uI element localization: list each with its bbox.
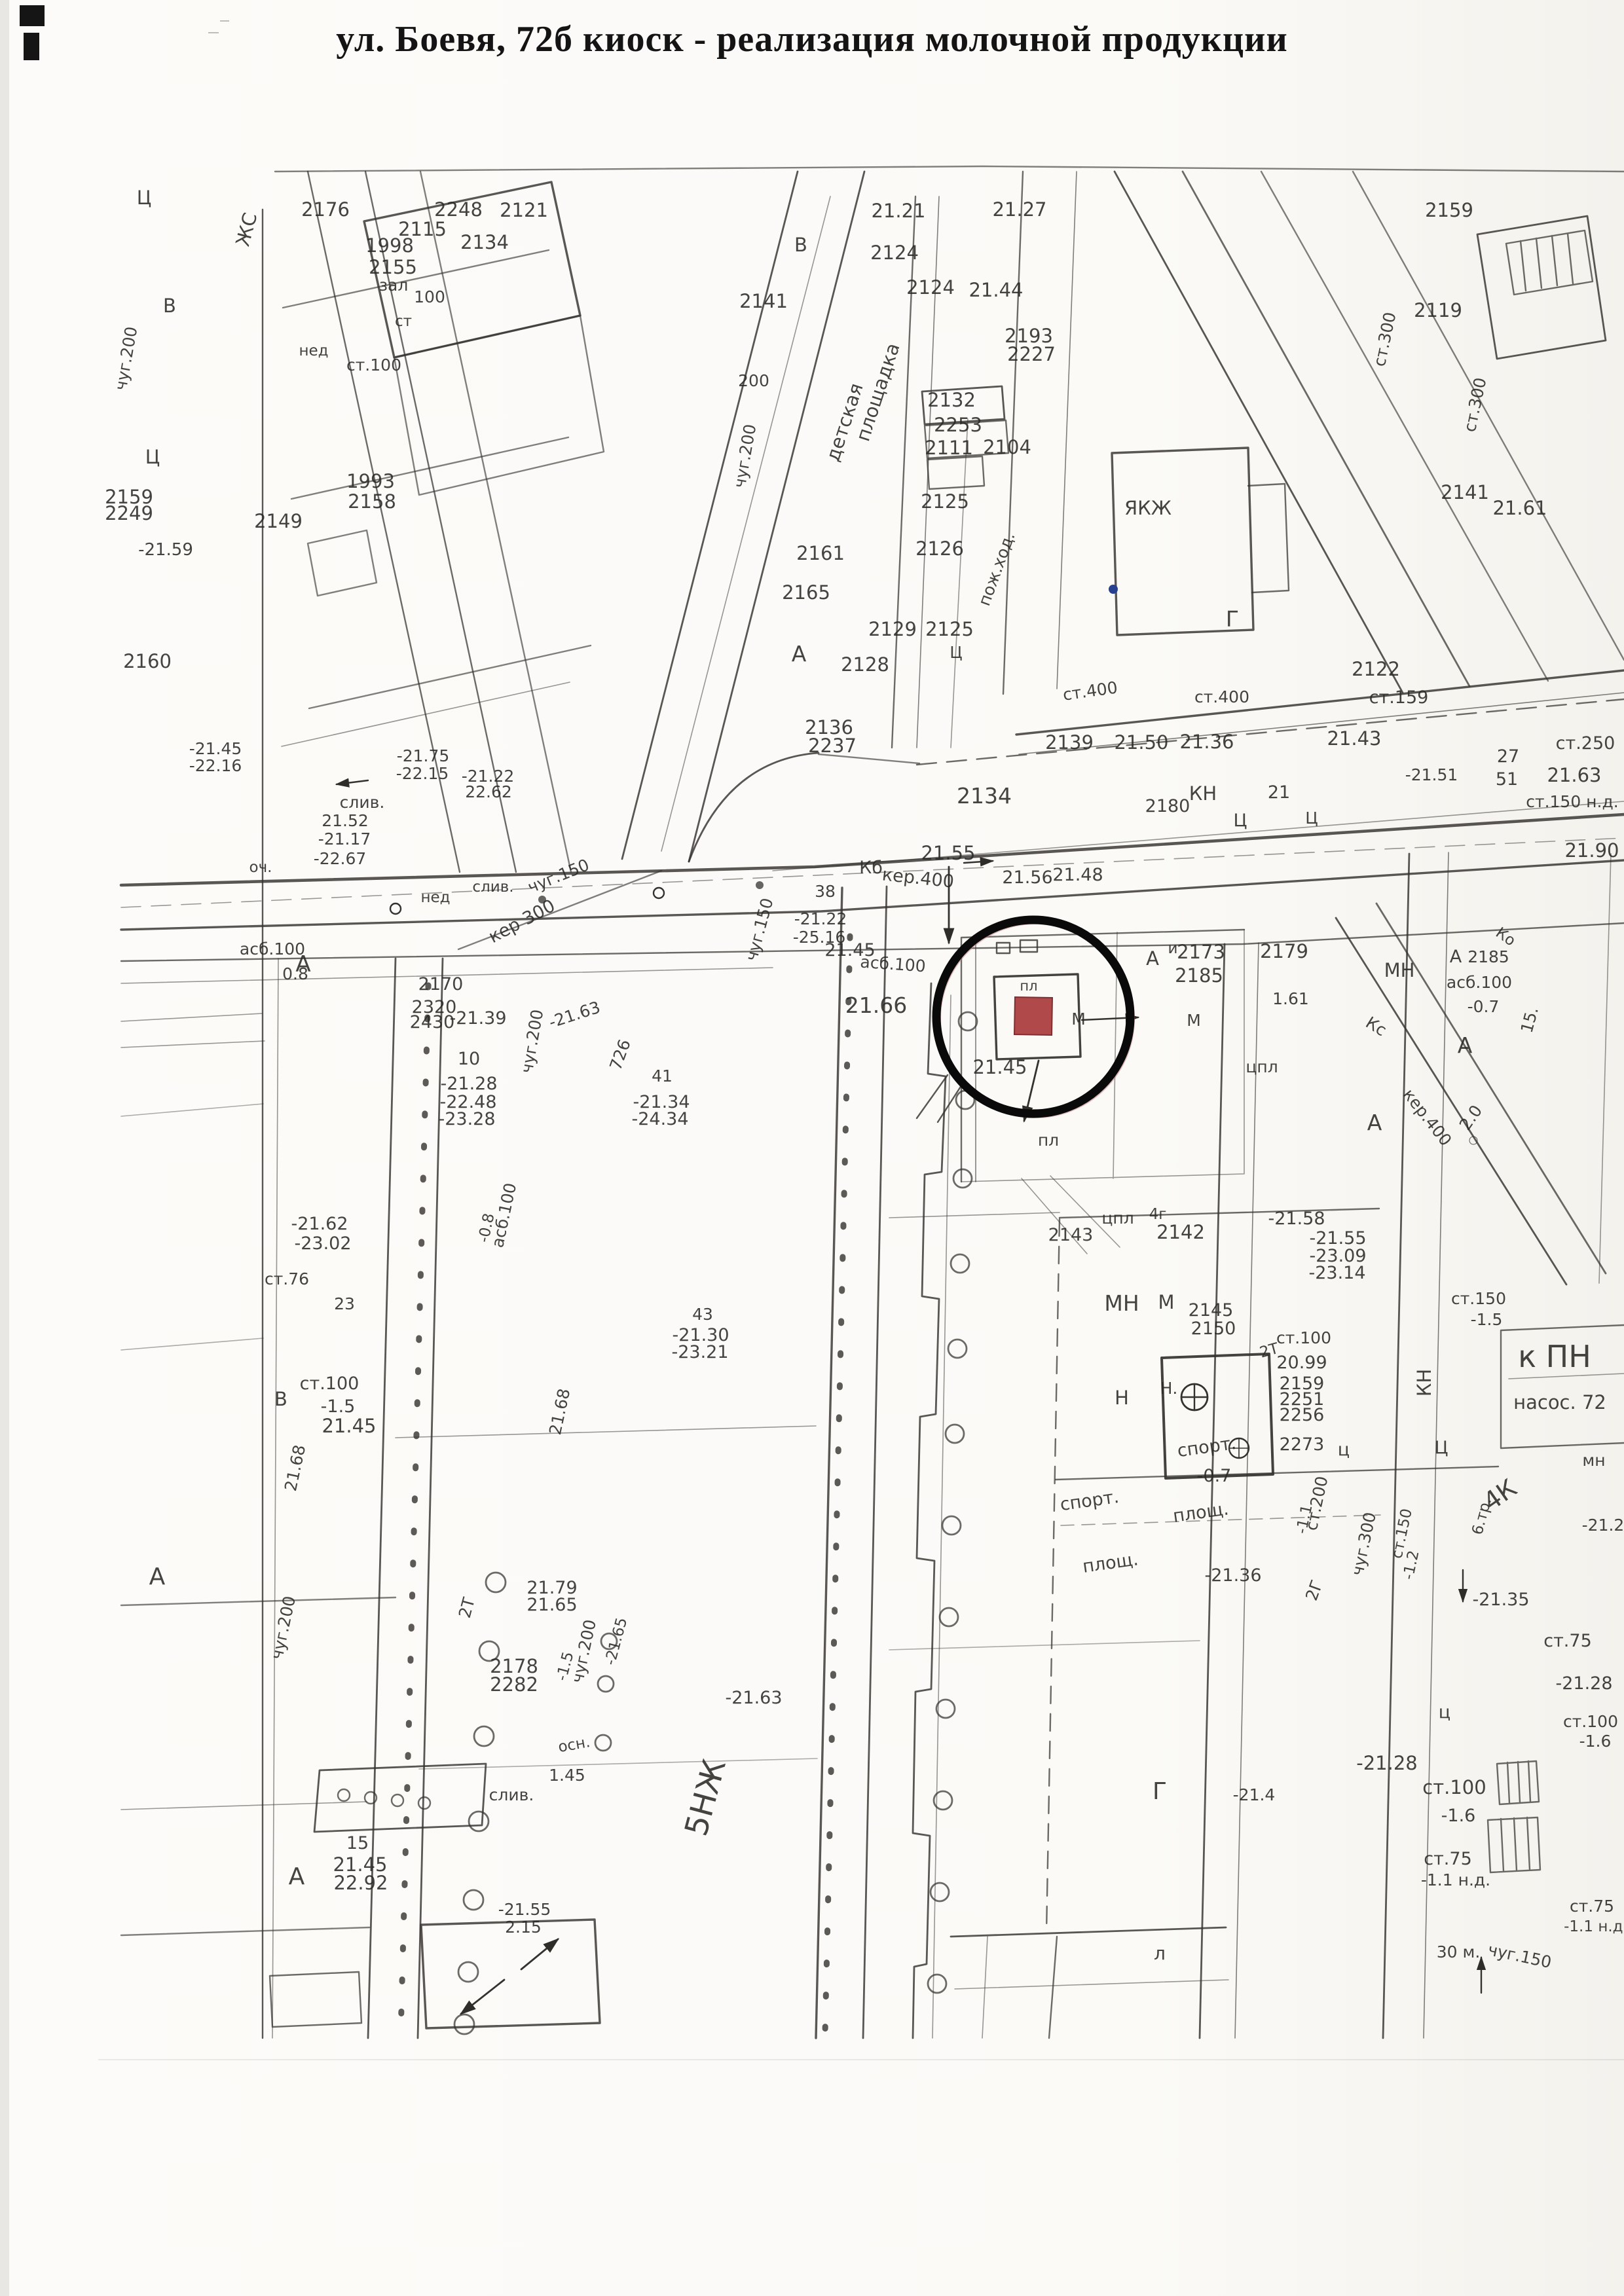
map-label: 21.43	[1327, 727, 1381, 750]
map-label: ЯКЖ	[1124, 497, 1172, 519]
map-label: 2237	[808, 735, 857, 757]
map-label: 2121	[500, 199, 548, 221]
map-label: -21.39	[449, 1008, 506, 1029]
map-label: ст.75	[1543, 1631, 1592, 1651]
map-label: 2104	[983, 436, 1031, 458]
map-label: 1.61	[1272, 989, 1309, 1008]
map-label: чуг.200	[568, 1618, 600, 1685]
map-label: -24.34	[631, 1109, 688, 1129]
map-label: 38	[815, 882, 836, 901]
map-label: 2.15	[505, 1918, 542, 1937]
map-label: 27	[1497, 746, 1519, 767]
map-label: нед	[299, 342, 328, 359]
map-label: 2129	[868, 618, 917, 640]
map-label: 2119	[1414, 299, 1462, 321]
map-label: 2149	[254, 510, 303, 532]
map-label: 2134	[957, 783, 1012, 809]
map-label: 2227	[1007, 343, 1056, 365]
map-label: зал	[379, 276, 409, 295]
map-label: 2155	[369, 256, 417, 278]
map-label: -1.5	[321, 1396, 356, 1417]
map-label: площ.	[1081, 1549, 1139, 1577]
map-label: 22.92	[333, 1872, 388, 1894]
map-label: М	[1187, 1011, 1201, 1030]
map-label: 21.44	[969, 279, 1023, 301]
map-label: ст.400	[1061, 678, 1118, 704]
map-label: оч.	[249, 859, 272, 876]
map-label: А	[295, 951, 310, 977]
map-label: -21.35	[1472, 1590, 1529, 1610]
map-label: Ц	[145, 446, 160, 468]
map-label: ст.400	[1194, 687, 1249, 706]
map-label: 21.21	[871, 200, 925, 222]
map-label: 21.90	[1564, 839, 1619, 862]
map-label: -21.63	[547, 998, 603, 1032]
map-label: асб.100	[1447, 973, 1512, 992]
map-label: -21.45	[189, 739, 242, 758]
map-label: 2185	[1175, 964, 1223, 987]
map-label: МН	[1384, 959, 1415, 981]
map-label: 2126	[915, 538, 964, 560]
map-label: 21.66	[845, 993, 907, 1018]
map-label: -22.16	[189, 756, 242, 775]
map-label: 200	[738, 371, 769, 390]
map-label: чуг.150	[1486, 1940, 1553, 1972]
scanned-page: ул. Боевя, 72б киоск - реализация молочн…	[0, 0, 1624, 2296]
map-label: -1.6	[1441, 1806, 1476, 1826]
map-label: спорт.	[1176, 1433, 1238, 1461]
map-label: 2176	[301, 198, 350, 221]
map-label: 2111	[925, 437, 973, 459]
map-label: М	[1158, 1291, 1174, 1313]
map-label: чуг.300	[1348, 1510, 1380, 1577]
map-label: пл	[1038, 1131, 1059, 1150]
map-label: 51	[1496, 769, 1518, 790]
map-label: А	[792, 641, 807, 666]
map-label: -21.2	[1582, 1516, 1624, 1535]
map-label: 43	[692, 1305, 713, 1324]
map-label: насос. 72	[1513, 1391, 1606, 1413]
map-label: 2282	[490, 1673, 538, 1696]
map-label: 2124	[870, 242, 919, 264]
map-label: -21.22	[794, 909, 847, 928]
map-label: 2143	[1048, 1225, 1094, 1245]
map-label: КН	[1413, 1369, 1435, 1396]
map-label: ст.300	[1370, 310, 1400, 368]
map-label: -23.21	[671, 1342, 728, 1362]
map-label: А	[1367, 1110, 1382, 1135]
map-label: -1.6	[1579, 1732, 1612, 1751]
map-label: Ко	[1492, 924, 1519, 950]
map-label: В	[794, 234, 807, 256]
map-label: 2125	[921, 490, 969, 513]
map-label: -21.55	[498, 1900, 551, 1919]
map-label: -21.28	[1356, 1752, 1418, 1774]
map-label: ст.75	[1570, 1897, 1614, 1916]
map-label: 21.50	[1114, 731, 1168, 754]
map-label: 21.52	[322, 811, 369, 830]
map-label: -1.1 н.д.	[1421, 1870, 1490, 1889]
map-label: 21.63	[1547, 764, 1601, 786]
map-label: 2249	[105, 502, 153, 524]
map-labels: 2176224821212115199821342155зал100стнедс…	[105, 187, 1624, 1972]
map-label: А	[1450, 947, 1462, 967]
map-label: ст.100	[1422, 1776, 1486, 1798]
map-label: -21.62	[291, 1214, 348, 1234]
map-label: 15.	[1517, 1005, 1542, 1035]
map-label: 2430	[410, 1012, 455, 1032]
map-label: 2142	[1156, 1221, 1205, 1243]
map-label: 2253	[934, 414, 982, 436]
map-label: МН	[1104, 1290, 1139, 1316]
map-label: Кс	[1362, 1013, 1390, 1040]
map-label: 2158	[348, 490, 396, 513]
map-label: А	[1458, 1032, 1473, 1058]
map-label: слив.	[489, 1785, 534, 1804]
map-label: 2159	[1425, 199, 1473, 221]
map-label: 10	[458, 1049, 480, 1069]
map-label: асб.100	[860, 953, 927, 976]
map-label: -23.14	[1308, 1263, 1365, 1283]
map-label: Ц	[1435, 1438, 1449, 1458]
map-label: 21.45	[322, 1415, 376, 1437]
map-label: Г	[1226, 606, 1239, 632]
map-label: -22.67	[314, 849, 367, 868]
map-label: -0.7	[1467, 997, 1500, 1016]
map-label: 2141	[739, 290, 788, 312]
map-label: 2150	[1191, 1319, 1236, 1339]
map-label: -21.63	[725, 1688, 782, 1708]
map-label: чуг.200	[517, 1008, 547, 1075]
map-label: ст.100	[346, 355, 401, 374]
map-label: ст.159	[1369, 687, 1429, 708]
map-label: ст.300	[1460, 376, 1490, 433]
map-label: 2124	[906, 276, 955, 299]
map-label: кер 300	[485, 896, 559, 947]
map-label: 2145	[1189, 1300, 1234, 1321]
map-label: 23	[334, 1294, 355, 1313]
map-label: 1998	[365, 234, 414, 257]
map-label: В	[163, 295, 176, 317]
map-label: 2165	[782, 581, 830, 604]
map-label: ст.76	[265, 1269, 309, 1288]
map-label: 5НЖ	[678, 1755, 733, 1840]
map-label: -0.7	[1197, 1466, 1232, 1486]
map-label: 2139	[1045, 731, 1094, 754]
map-label: 6.тр.	[1469, 1496, 1495, 1537]
map-label: пл	[1020, 978, 1037, 994]
map-label: -21.36	[1204, 1565, 1261, 1586]
map-label: кер.400	[881, 864, 955, 892]
map-label: -23.02	[294, 1233, 351, 1254]
map-label: 15	[346, 1833, 369, 1853]
map-label: ЖС	[231, 210, 261, 249]
map-label: 2132	[927, 389, 976, 411]
map-label: В	[274, 1388, 287, 1410]
map-label: цпл	[1246, 1057, 1278, 1076]
map-label: чуг.150	[525, 855, 592, 897]
map-label: -22.15	[396, 764, 449, 783]
map-label: -23.28	[438, 1109, 495, 1129]
map-label: 21.56	[1002, 867, 1052, 888]
map-label: -21.17	[318, 829, 371, 848]
map-label: -21.51	[1405, 765, 1458, 784]
kiosk-marker	[1014, 997, 1052, 1035]
map-label: чуг.200	[267, 1594, 299, 1661]
map-label: 21.45	[972, 1056, 1027, 1078]
map-label: 2185	[1467, 947, 1509, 966]
map-label: ц	[1439, 1702, 1450, 1722]
map-label: Ц	[950, 643, 962, 662]
map-label: А	[149, 1563, 166, 1590]
map-label: Кб	[859, 858, 883, 878]
map-label: нед	[420, 889, 450, 906]
map-label: 2173	[1177, 941, 1225, 963]
map-label: 30 м.	[1437, 1942, 1481, 1961]
map-label: 2122	[1352, 658, 1400, 680]
map-label: Н	[1115, 1387, 1129, 1409]
map-label: 21.61	[1492, 497, 1547, 519]
map-label: 2160	[123, 650, 172, 672]
map-label: 2Т	[455, 1595, 479, 1620]
map-label: л	[1154, 1942, 1166, 1964]
map-label: 726	[606, 1037, 635, 1073]
map-label: 2141	[1441, 481, 1489, 503]
map-label: 21	[1268, 782, 1290, 803]
map-label: ц	[1338, 1440, 1350, 1460]
map-label: Г	[1153, 1778, 1167, 1805]
map-label: 2128	[841, 653, 889, 676]
map-label: к ПН	[1518, 1339, 1591, 1374]
map-label: -21.4	[1233, 1785, 1276, 1804]
map-label: -1.1 н.д.	[1564, 1918, 1624, 1935]
map-label: ст.100	[1563, 1712, 1618, 1731]
map-label: 1.45	[549, 1766, 585, 1785]
map-label: 21.27	[992, 198, 1046, 221]
blue-dot-artifact	[1109, 585, 1118, 594]
map-label: чуг.200	[111, 325, 141, 392]
map-label: 21.65	[526, 1595, 577, 1615]
map-label: 21.55	[921, 842, 975, 864]
map-label: площ.	[1172, 1499, 1230, 1527]
map-label: 21.36	[1179, 731, 1234, 753]
map-label: 21.48	[1052, 865, 1103, 885]
map-label: пож.ход.	[974, 530, 1018, 608]
map-label: А	[289, 1863, 305, 1890]
map-label: -21.28	[1555, 1673, 1612, 1694]
map-label: 2179	[1260, 940, 1308, 962]
map-label: -21.59	[138, 540, 193, 560]
map-label: осн.	[557, 1734, 591, 1756]
map-label: 2256	[1280, 1405, 1325, 1425]
map-label: Ц	[137, 187, 152, 209]
map-label: 22.62	[465, 782, 512, 801]
map-label: 100	[414, 287, 445, 306]
map-label: ст.150 н.д.	[1526, 792, 1618, 811]
map-label: чуг.200	[730, 423, 760, 490]
map-label: 41	[652, 1066, 673, 1085]
map-label: Ц	[1305, 809, 1318, 828]
map-label: ст	[395, 313, 412, 330]
map-label: А	[1146, 947, 1159, 970]
map-label: 2180	[1145, 796, 1190, 816]
map-label: 2170	[418, 974, 464, 994]
map-label: 2Г	[1302, 1577, 1327, 1603]
map-label: 21.68	[545, 1387, 574, 1436]
map-label: -21.65	[602, 1616, 631, 1667]
map-label: 1993	[346, 470, 395, 492]
map-label: Н.	[1160, 1379, 1178, 1398]
map-label: -1.5	[1471, 1310, 1503, 1329]
map-label: 2273	[1280, 1434, 1325, 1455]
map-label: ст.100	[300, 1374, 360, 1394]
map-label: 2.0	[1456, 1102, 1486, 1134]
map-label: ст.100	[1276, 1328, 1331, 1347]
map-label: Ц	[1234, 811, 1247, 831]
map-label: слив.	[472, 879, 513, 896]
map-label: -21.28	[440, 1074, 497, 1094]
map-label: слив.	[340, 793, 385, 812]
map-label: КН	[1189, 782, 1217, 805]
map-canvas: 2176224821212115199821342155зал100стнедс…	[0, 0, 1624, 2296]
map-label: М	[1071, 1010, 1086, 1029]
map-label: спорт.	[1059, 1487, 1120, 1515]
map-label: -21.58	[1268, 1209, 1325, 1229]
map-label: чуг.150	[742, 896, 777, 964]
map-label: 2134	[460, 231, 509, 253]
map-label: мн	[1582, 1451, 1605, 1470]
map-label: ст.75	[1424, 1849, 1472, 1869]
map-label: 2125	[925, 618, 974, 640]
map-label: ст.250	[1556, 733, 1615, 754]
map-label: 2248	[434, 198, 483, 221]
map-label: 20.99	[1276, 1353, 1327, 1373]
map-label: ст.150	[1451, 1289, 1506, 1308]
map-label: -21.75	[397, 746, 450, 765]
map-label: 21.68	[281, 1443, 309, 1493]
map-label: 2161	[796, 542, 845, 564]
map-label: цпл	[1101, 1209, 1134, 1228]
